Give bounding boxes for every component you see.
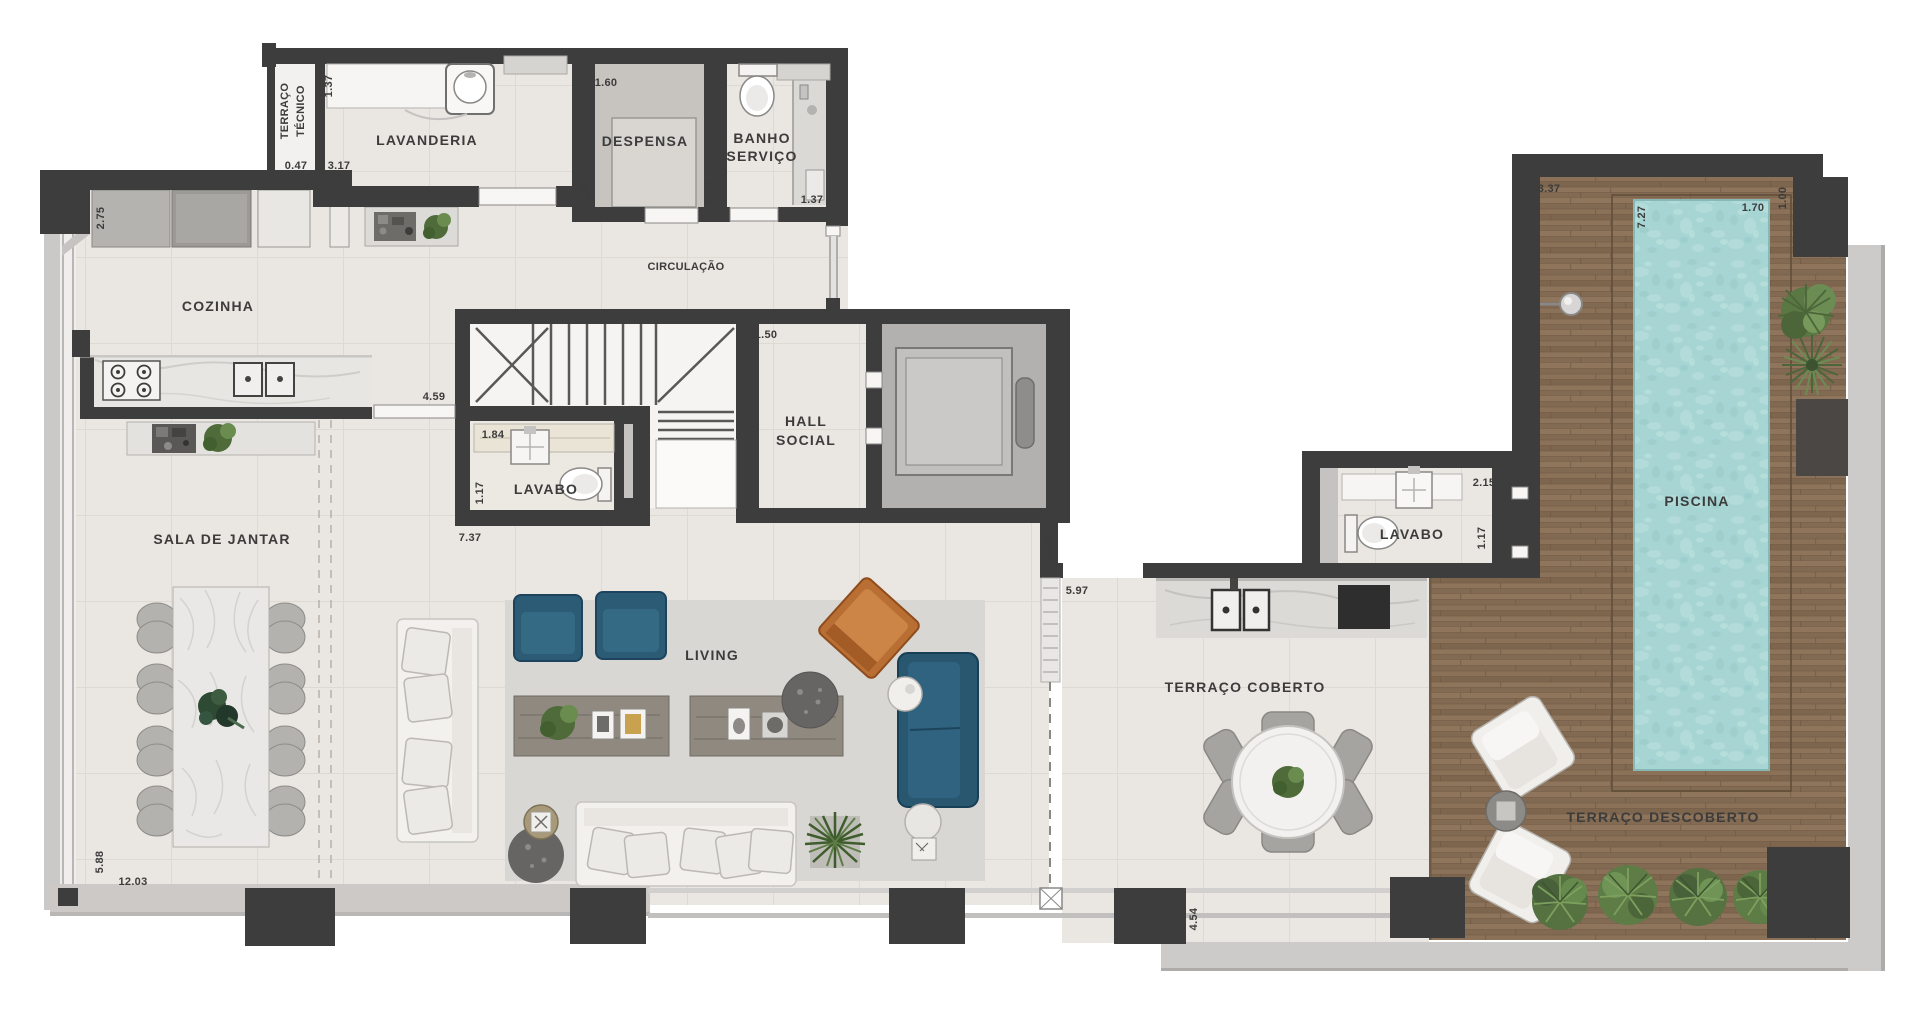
svg-text:1.17: 1.17 xyxy=(474,482,486,505)
svg-text:1.80: 1.80 xyxy=(703,182,715,205)
svg-text:PISCINA: PISCINA xyxy=(1664,493,1729,509)
svg-text:12.03: 12.03 xyxy=(118,876,147,888)
svg-text:TERRAÇO COBERTO: TERRAÇO COBERTO xyxy=(1165,679,1326,695)
svg-text:4.54: 4.54 xyxy=(1188,907,1200,930)
svg-text:SALA DE JANTAR: SALA DE JANTAR xyxy=(153,531,290,547)
svg-text:4.59: 4.59 xyxy=(423,391,446,403)
svg-text:SOCIAL: SOCIAL xyxy=(776,432,836,448)
svg-text:1.17: 1.17 xyxy=(1476,527,1488,550)
svg-text:5.88: 5.88 xyxy=(94,851,106,874)
svg-text:LAVANDERIA: LAVANDERIA xyxy=(376,132,478,148)
svg-text:SERVIÇO: SERVIÇO xyxy=(726,148,797,164)
svg-text:HALL: HALL xyxy=(785,413,827,429)
svg-text:1.50: 1.50 xyxy=(755,329,778,341)
svg-text:TERRAÇO: TERRAÇO xyxy=(279,83,291,140)
svg-text:LAVABO: LAVABO xyxy=(514,481,578,497)
svg-text:5.97: 5.97 xyxy=(1066,585,1089,597)
svg-text:1.70: 1.70 xyxy=(1742,202,1765,214)
svg-text:4.68: 4.68 xyxy=(1044,537,1056,560)
svg-text:3.37: 3.37 xyxy=(1538,183,1561,195)
svg-text:1.84: 1.84 xyxy=(482,429,505,441)
svg-text:3.17: 3.17 xyxy=(328,160,351,172)
svg-text:1.80: 1.80 xyxy=(580,182,592,205)
svg-text:CIRCULAÇÃO: CIRCULAÇÃO xyxy=(648,260,725,273)
svg-text:TERRAÇO DESCOBERTO: TERRAÇO DESCOBERTO xyxy=(1566,809,1759,825)
svg-text:1.37: 1.37 xyxy=(323,75,335,98)
svg-text:COZINHA: COZINHA xyxy=(182,298,254,314)
svg-text:1.37: 1.37 xyxy=(801,194,824,206)
svg-text:1.00: 1.00 xyxy=(1777,187,1789,210)
svg-text:TÉCNICO: TÉCNICO xyxy=(294,85,307,137)
svg-text:BANHO: BANHO xyxy=(733,130,790,146)
svg-text:DESPENSA: DESPENSA xyxy=(602,133,689,149)
svg-text:LAVABO: LAVABO xyxy=(1380,526,1444,542)
svg-text:7.37: 7.37 xyxy=(459,532,482,544)
svg-text:7.27: 7.27 xyxy=(1636,206,1648,229)
svg-text:2.75: 2.75 xyxy=(95,207,107,230)
svg-text:LIVING: LIVING xyxy=(685,647,739,663)
svg-text:2.15: 2.15 xyxy=(1473,477,1496,489)
svg-text:0.47: 0.47 xyxy=(285,160,308,172)
svg-text:1.60: 1.60 xyxy=(595,77,618,89)
